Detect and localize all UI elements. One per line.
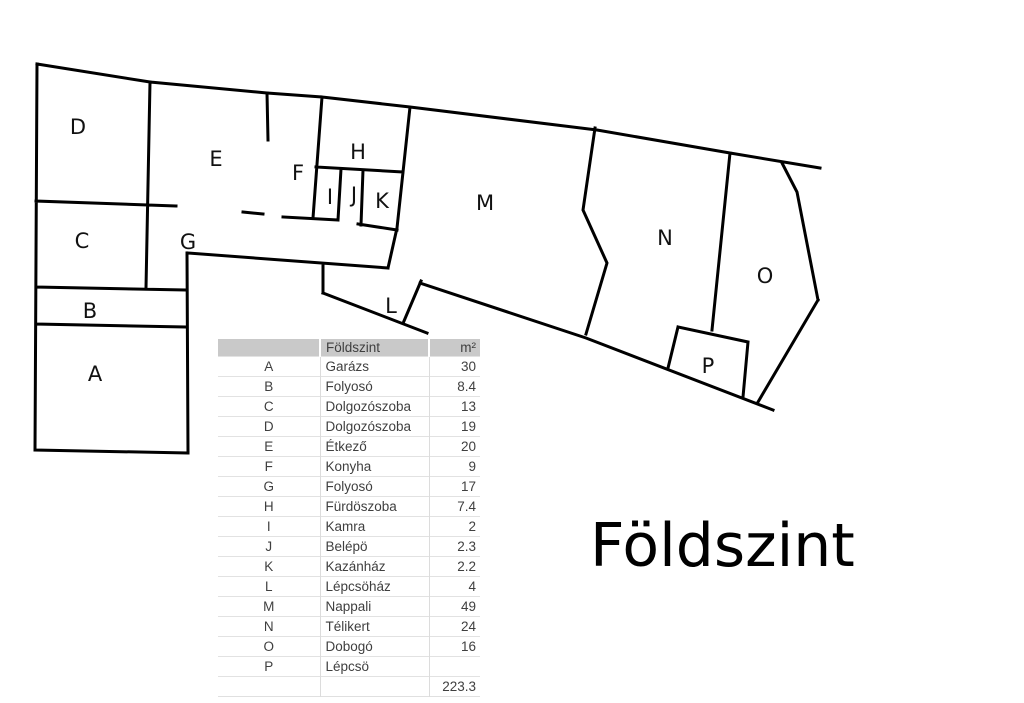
table-row: NTélikert24 <box>218 617 480 637</box>
table-row: AGarázs30 <box>218 357 480 377</box>
cell-room-name: Garázs <box>320 357 429 377</box>
table-row: FKonyha9 <box>218 457 480 477</box>
cell-room-letter: F <box>218 457 320 477</box>
floorplan: A B C D E F G H I J K L M N O P <box>0 0 1024 703</box>
cell-room-name: Fürdöszoba <box>320 497 429 517</box>
table-row: DDolgozószoba19 <box>218 417 480 437</box>
cell-room-name: Belépö <box>320 537 429 557</box>
table-row: LLépcsöház4 <box>218 577 480 597</box>
table-row: BFolyosó8.4 <box>218 377 480 397</box>
header-floor-label: Földszint <box>320 339 429 357</box>
total-letter-cell <box>218 677 320 697</box>
total-area-value: 223.3 <box>429 677 480 697</box>
cell-room-letter: O <box>218 637 320 657</box>
cell-room-name: Dobogó <box>320 637 429 657</box>
room-label-d: D <box>70 115 86 139</box>
cell-room-area: 8.4 <box>429 377 480 397</box>
total-name-cell <box>320 677 429 697</box>
cell-room-area: 7.4 <box>429 497 480 517</box>
cell-room-name: Nappali <box>320 597 429 617</box>
cell-room-letter: K <box>218 557 320 577</box>
cell-room-area: 30 <box>429 357 480 377</box>
room-label-f: F <box>292 161 304 185</box>
cell-room-letter: L <box>218 577 320 597</box>
room-label-g: G <box>180 230 196 254</box>
cell-room-area: 4 <box>429 577 480 597</box>
room-label-k: K <box>375 189 390 213</box>
cell-room-name: Dolgozószoba <box>320 397 429 417</box>
cell-room-letter: H <box>218 497 320 517</box>
room-label-p: P <box>702 354 715 378</box>
cell-room-letter: G <box>218 477 320 497</box>
cell-room-name: Konyha <box>320 457 429 477</box>
cell-room-letter: M <box>218 597 320 617</box>
cell-room-area: 2.3 <box>429 537 480 557</box>
cell-room-name: Télikert <box>320 617 429 637</box>
header-row: Földszint m² <box>218 339 480 357</box>
cell-room-letter: I <box>218 517 320 537</box>
cell-room-area: 9 <box>429 457 480 477</box>
header-area-unit: m² <box>429 339 480 357</box>
room-label-n: N <box>657 226 673 250</box>
room-label-i: I <box>327 185 333 209</box>
cell-room-area: 17 <box>429 477 480 497</box>
table-row: MNappali49 <box>218 597 480 617</box>
cell-room-letter: E <box>218 437 320 457</box>
cell-room-area: 20 <box>429 437 480 457</box>
cell-room-name: Étkező <box>320 437 429 457</box>
cell-room-name: Lépcsöház <box>320 577 429 597</box>
room-label-o: O <box>757 264 774 288</box>
cell-room-letter: J <box>218 537 320 557</box>
page-title: Földszint <box>590 516 855 576</box>
cell-room-letter: P <box>218 657 320 677</box>
cell-room-letter: C <box>218 397 320 417</box>
cell-room-letter: D <box>218 417 320 437</box>
room-label-e: E <box>209 147 222 171</box>
room-label-h: H <box>350 140 366 164</box>
cell-room-area: 2 <box>429 517 480 537</box>
table-row: CDolgozószoba13 <box>218 397 480 417</box>
room-label-j: J <box>349 183 357 207</box>
table-row: JBelépö2.3 <box>218 537 480 557</box>
table-row: EÉtkező20 <box>218 437 480 457</box>
cell-room-name: Dolgozószoba <box>320 417 429 437</box>
table-row: KKazánház2.2 <box>218 557 480 577</box>
total-row: 223.3 <box>218 677 480 697</box>
table-row: HFürdöszoba7.4 <box>218 497 480 517</box>
cell-room-area: 24 <box>429 617 480 637</box>
room-label-c: C <box>75 229 90 253</box>
area-table: Földszint m² AGarázs30BFolyosó8.4CDolgoz… <box>218 339 480 697</box>
cell-room-letter: A <box>218 357 320 377</box>
cell-room-area: 16 <box>429 637 480 657</box>
room-label-m: M <box>476 191 494 215</box>
cell-room-name: Kazánház <box>320 557 429 577</box>
cell-room-letter: N <box>218 617 320 637</box>
table-row: GFolyosó17 <box>218 477 480 497</box>
table-header: Földszint m² <box>218 339 480 357</box>
table-row: PLépcsö <box>218 657 480 677</box>
header-letter-cell <box>218 339 320 357</box>
cell-room-area: 2.2 <box>429 557 480 577</box>
room-label-b: B <box>83 299 97 323</box>
table-row: ODobogó16 <box>218 637 480 657</box>
cell-room-name: Folyosó <box>320 477 429 497</box>
cell-room-name: Kamra <box>320 517 429 537</box>
cell-room-name: Folyosó <box>320 377 429 397</box>
cell-room-name: Lépcsö <box>320 657 429 677</box>
cell-room-letter: B <box>218 377 320 397</box>
room-label-l: L <box>385 294 397 318</box>
cell-room-area: 13 <box>429 397 480 417</box>
cell-room-area: 19 <box>429 417 480 437</box>
page: A B C D E F G H I J K L M N O P Földszin… <box>0 0 1024 703</box>
room-label-a: A <box>88 362 103 386</box>
table-row: IKamra2 <box>218 517 480 537</box>
cell-room-area <box>429 657 480 677</box>
cell-room-area: 49 <box>429 597 480 617</box>
table-footer: 223.3 <box>218 677 480 697</box>
table-body: AGarázs30BFolyosó8.4CDolgozószoba13DDolg… <box>218 357 480 677</box>
